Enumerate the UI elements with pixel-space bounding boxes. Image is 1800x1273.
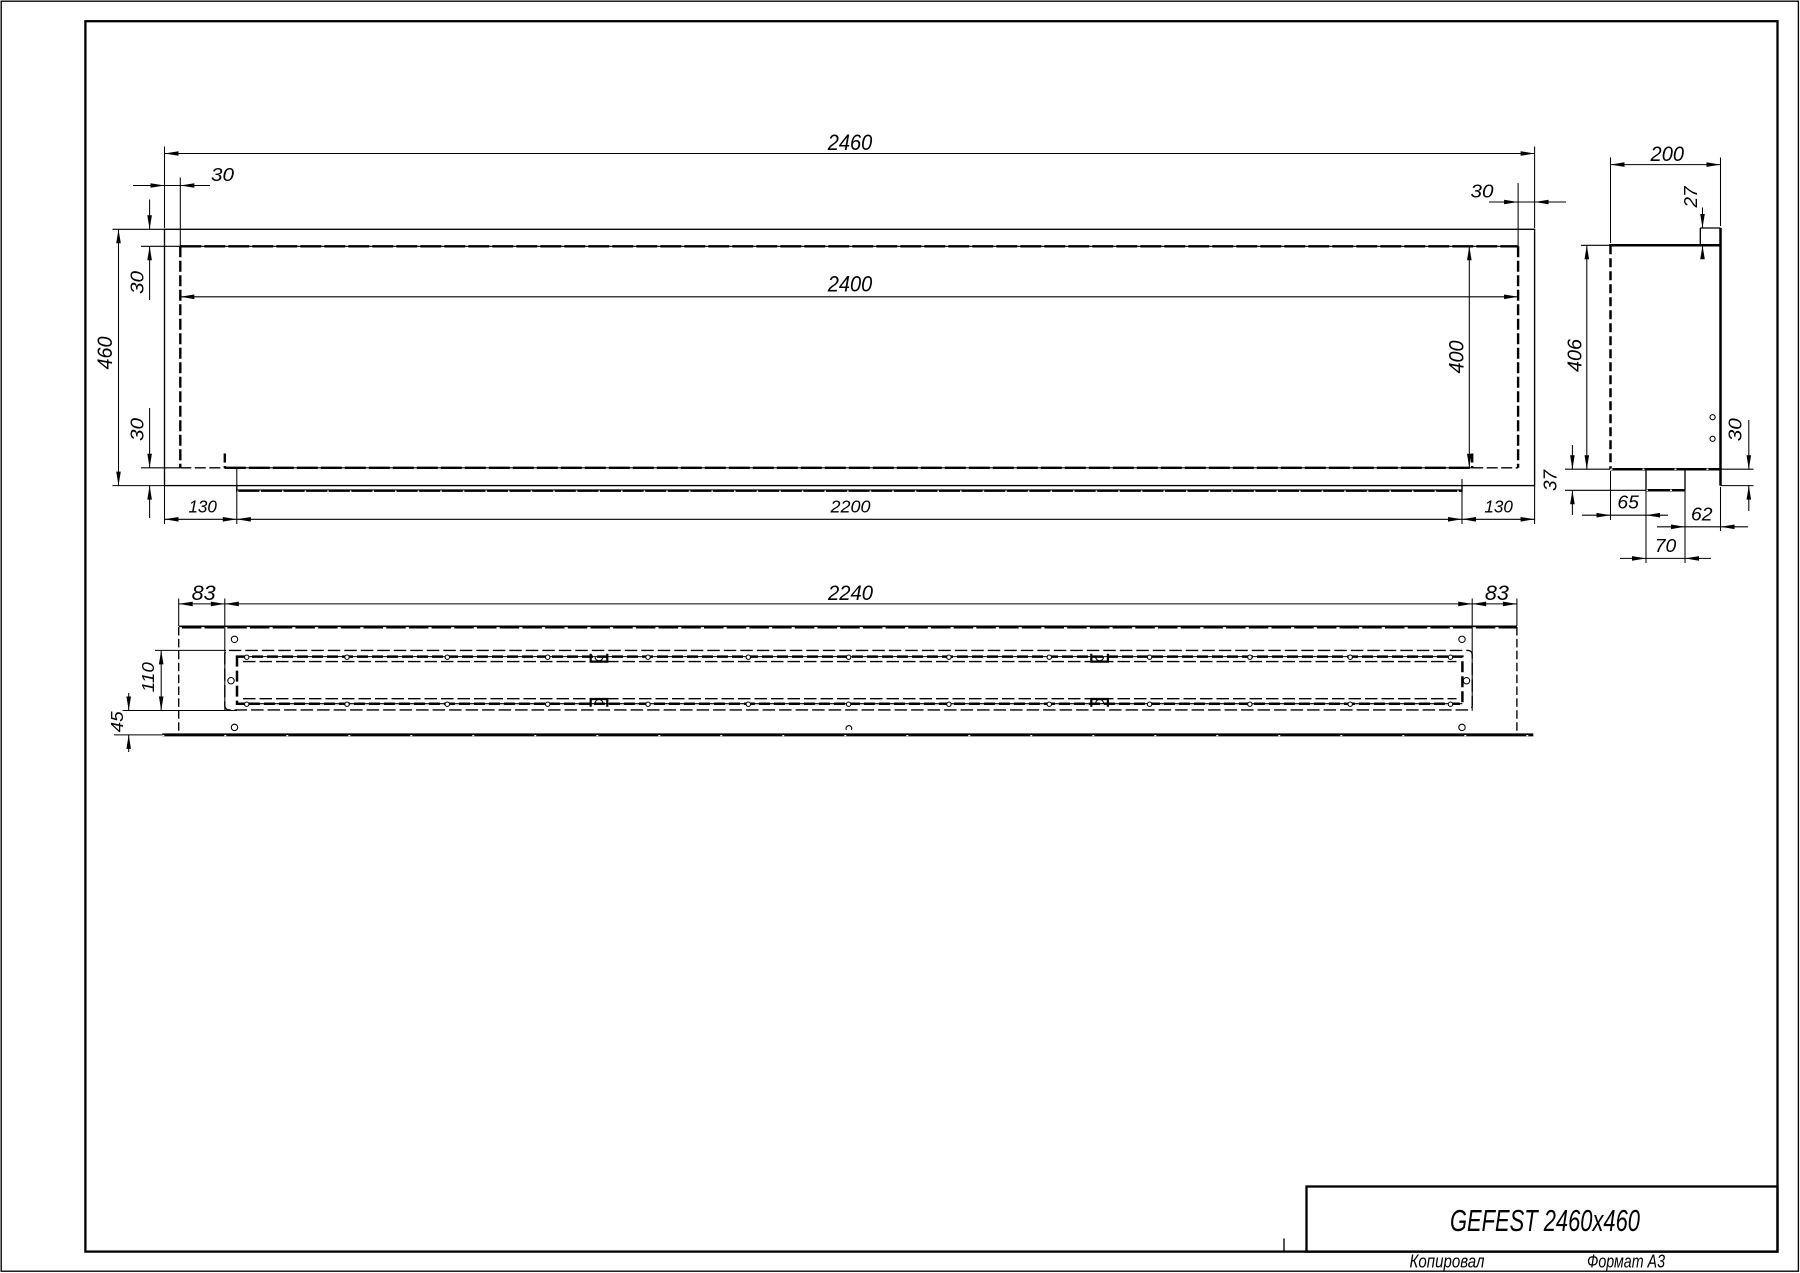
svg-text:2400: 2400 — [827, 272, 873, 297]
svg-text:2200: 2200 — [829, 497, 870, 517]
svg-text:110: 110 — [138, 662, 158, 692]
svg-text:30: 30 — [1471, 181, 1495, 202]
svg-text:62: 62 — [1691, 504, 1713, 524]
svg-text:460: 460 — [94, 336, 117, 369]
svg-text:400: 400 — [1446, 340, 1469, 373]
svg-text:83: 83 — [192, 582, 216, 605]
svg-text:30: 30 — [127, 270, 148, 294]
svg-text:45: 45 — [107, 711, 127, 732]
svg-text:130: 130 — [188, 497, 217, 517]
svg-text:2460: 2460 — [827, 130, 873, 155]
svg-text:27: 27 — [1681, 185, 1701, 208]
svg-text:65: 65 — [1617, 493, 1640, 513]
svg-text:30: 30 — [1724, 417, 1745, 441]
svg-text:37: 37 — [1541, 469, 1561, 491]
svg-text:200: 200 — [1650, 143, 1685, 166]
svg-text:Копировал: Копировал — [1410, 1251, 1485, 1272]
svg-text:2240: 2240 — [827, 582, 873, 605]
svg-text:30: 30 — [211, 164, 235, 185]
svg-text:83: 83 — [1485, 582, 1509, 605]
svg-text:70: 70 — [1655, 536, 1677, 556]
svg-text:406: 406 — [1564, 338, 1586, 372]
svg-text:Формат А3: Формат А3 — [1587, 1251, 1666, 1272]
svg-text:30: 30 — [127, 417, 148, 441]
svg-text:GEFEST 2460x460: GEFEST 2460x460 — [1450, 1203, 1640, 1238]
svg-text:130: 130 — [1484, 497, 1513, 517]
